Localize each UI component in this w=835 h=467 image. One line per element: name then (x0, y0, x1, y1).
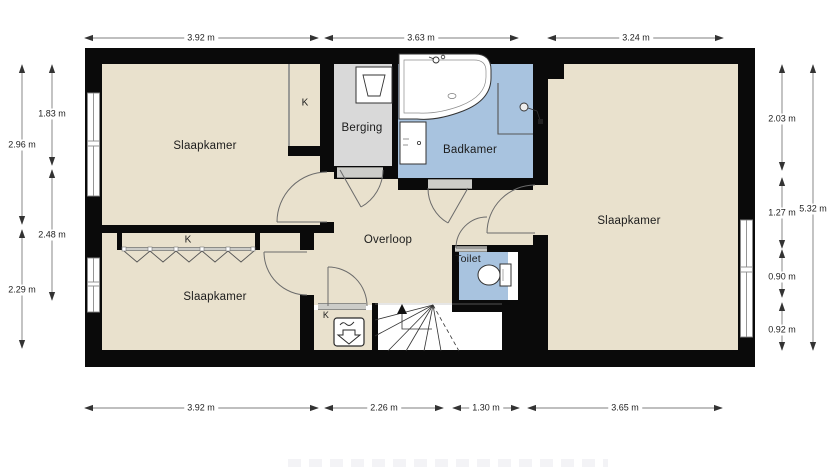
door-sill (455, 246, 487, 252)
wall (85, 48, 102, 367)
room-bathroom (398, 64, 533, 178)
dim-label-right-inner-1: 2.03 m (765, 114, 799, 125)
wall (255, 233, 260, 250)
closet-label-mechanical: K (323, 310, 329, 320)
dim-label-right-inner-2: 1.27 m (765, 208, 799, 219)
room-bedroom-right (548, 64, 738, 350)
door-sill (318, 303, 366, 310)
floorplan-canvas: Slaapkamer Berging Badkamer Slaapkamer O… (0, 0, 835, 467)
dim-label-top-1: 3.92 m (184, 33, 218, 44)
wall (372, 303, 378, 352)
dim-label-right-outer-1: 5.32 m (796, 204, 830, 215)
door-opening (533, 185, 548, 235)
room-storage (334, 64, 392, 166)
dim-label-left-outer-2: 2.29 m (5, 285, 39, 296)
room-label-bedroom-top-left: Slaapkamer (173, 140, 236, 152)
dim-label-right-inner-3: 0.90 m (765, 272, 799, 283)
closet-sill (122, 247, 255, 251)
room-label-bathroom: Badkamer (443, 144, 497, 156)
room-label-landing: Overloop (364, 234, 412, 246)
wall (85, 48, 755, 64)
dim-label-left-inner-2: 2.48 m (35, 230, 69, 241)
wall (502, 303, 533, 352)
dim-label-right-inner-4: 0.92 m (765, 325, 799, 336)
dim-label-bottom-2: 2.26 m (367, 403, 401, 414)
room-label-storage: Berging (341, 122, 382, 134)
door-opening (300, 250, 314, 295)
room-landing-west-strip (314, 233, 334, 305)
wall (392, 64, 398, 167)
toilet-duct-strip (508, 252, 518, 300)
wall (85, 350, 755, 367)
room-label-bedroom-bottom-left: Slaapkamer (183, 291, 246, 303)
dim-label-left-inner-1: 1.83 m (35, 109, 69, 120)
wall (288, 146, 320, 156)
cutoff-caption (288, 459, 608, 467)
dim-label-bottom-3: 1.30 m (469, 403, 503, 414)
room-label-toilet: Toilet (455, 253, 481, 265)
closet-label-top-left: K (302, 98, 309, 109)
door-sill (337, 167, 383, 178)
dim-label-bottom-4: 3.65 m (608, 403, 642, 414)
dim-label-left-outer-1: 2.96 m (5, 140, 39, 151)
closet-label-bottom-left: K (185, 235, 192, 246)
wall (300, 225, 314, 367)
dim-label-top-3: 3.24 m (619, 33, 653, 44)
door-opening (320, 172, 334, 222)
wall (738, 48, 755, 367)
dim-label-bottom-1: 3.92 m (184, 403, 218, 414)
room-label-bedroom-right: Slaapkamer (597, 215, 660, 227)
dim-label-top-2: 3.63 m (404, 33, 438, 44)
wall (548, 64, 564, 79)
door-sill (428, 179, 472, 189)
wall (85, 225, 334, 233)
